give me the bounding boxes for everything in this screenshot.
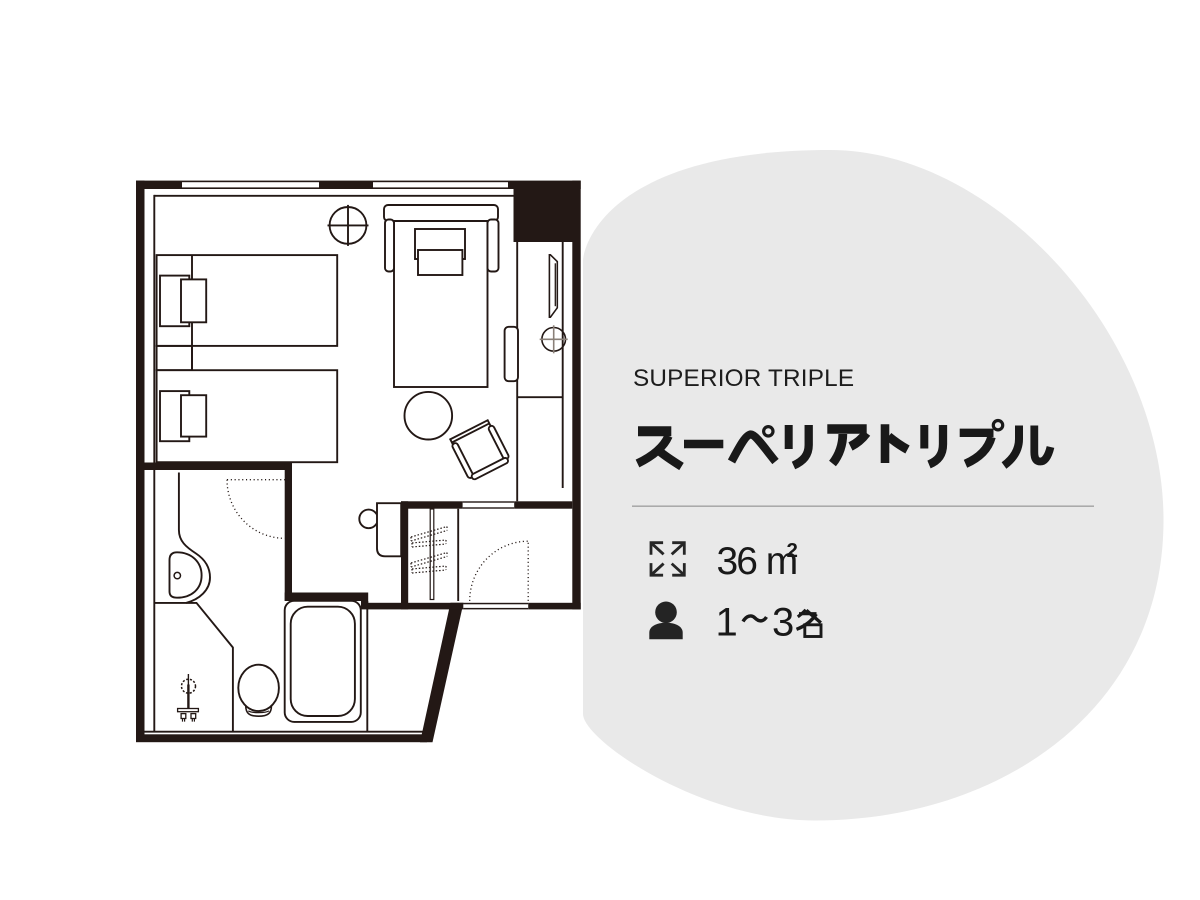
svg-text:2: 2: [787, 539, 798, 562]
svg-text:SUPERIOR TRIPLE: SUPERIOR TRIPLE: [633, 365, 854, 392]
svg-text:1: 1: [716, 600, 738, 644]
svg-text:36: 36: [717, 540, 757, 583]
svg-text:3: 3: [772, 600, 794, 644]
